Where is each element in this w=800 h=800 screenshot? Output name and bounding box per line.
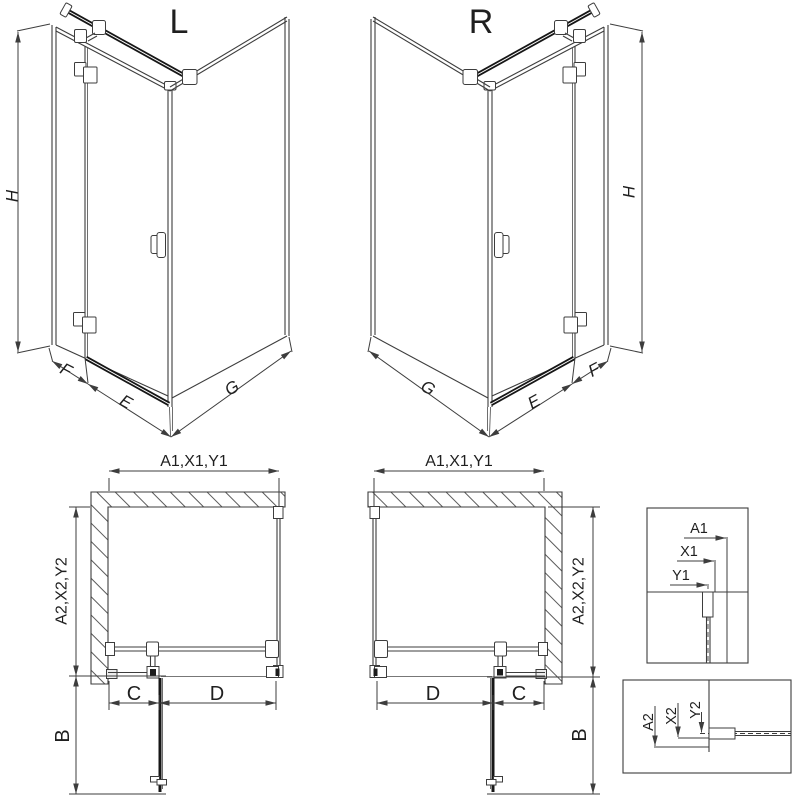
dim-label-e-l: E <box>116 391 136 413</box>
plan-l-b-label: B <box>52 729 74 742</box>
plan-l-c-label: C <box>127 683 141 705</box>
plan-l-d-label: D <box>210 683 224 705</box>
perspective-view-l: L H F E G <box>3 3 293 437</box>
dim-label-f-r: F <box>585 358 604 380</box>
detail-a2-label: A2 <box>641 713 657 731</box>
variant-title-l: L <box>170 3 189 41</box>
plan-r-c-label: C <box>512 683 526 705</box>
plan-r-depth-label: A2,X2,Y2 <box>571 557 588 625</box>
plan-l-walls <box>91 492 285 684</box>
plan-l-depth-label: A2,X2,Y2 <box>54 557 71 625</box>
plan-view-l: A1,X1,Y1 A2,X2,Y2 C D B <box>52 453 285 794</box>
plan-r-d-label: D <box>426 683 440 705</box>
plan-r-walls <box>368 492 562 684</box>
perspective-view-r: R H F E G <box>368 3 643 437</box>
plan-l-width-label: A1,X1,Y1 <box>160 453 228 470</box>
dim-label-h-l: H <box>3 189 22 202</box>
detail-inset-depth: A2 X2 Y2 <box>623 680 791 773</box>
diagram-canvas: L H F E G R H F E G <box>0 0 800 800</box>
plan-view-r: A1,X1,Y1 A2,X2,Y2 D C B <box>368 453 600 794</box>
detail-a1-label: A1 <box>690 521 708 537</box>
dim-label-g-r: G <box>417 376 438 399</box>
dim-label-f-l: F <box>57 359 76 381</box>
detail-inset-width: A1 X1 Y1 <box>647 508 748 663</box>
plan-r-width-label: A1,X1,Y1 <box>425 453 493 470</box>
detail-x2-label: X2 <box>664 707 680 725</box>
plan-r-dimensions <box>374 471 600 794</box>
dim-label-g-l: G <box>221 376 242 399</box>
plan-r-b-label: B <box>569 728 591 741</box>
detail-x1-label: X1 <box>680 544 698 560</box>
dim-label-h-r: H <box>620 185 639 198</box>
detail-y1-label: Y1 <box>672 568 690 584</box>
shower-enclosure-diagram: L H F E G R H F E G <box>0 0 800 800</box>
detail-y2-label: Y2 <box>688 701 704 719</box>
variant-title-r: R <box>469 3 494 41</box>
dim-label-e-r: E <box>524 391 544 413</box>
